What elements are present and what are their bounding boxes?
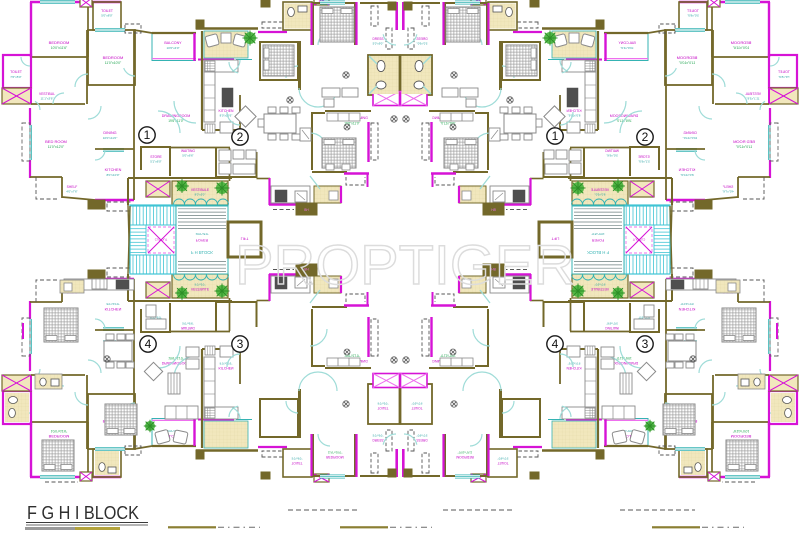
svg-text:2: 2	[237, 130, 244, 144]
svg-text:4: 4	[552, 337, 559, 351]
svg-text:3: 3	[642, 337, 649, 351]
svg-text:PROPTIGER: PROPTIGER	[235, 233, 575, 296]
svg-text:3: 3	[237, 337, 244, 351]
svg-text:1: 1	[144, 128, 151, 142]
svg-text:F G H I BLOCK: F G H I BLOCK	[27, 503, 139, 523]
svg-text:2: 2	[642, 130, 649, 144]
svg-text:1: 1	[552, 129, 559, 143]
svg-text:4: 4	[145, 337, 152, 351]
